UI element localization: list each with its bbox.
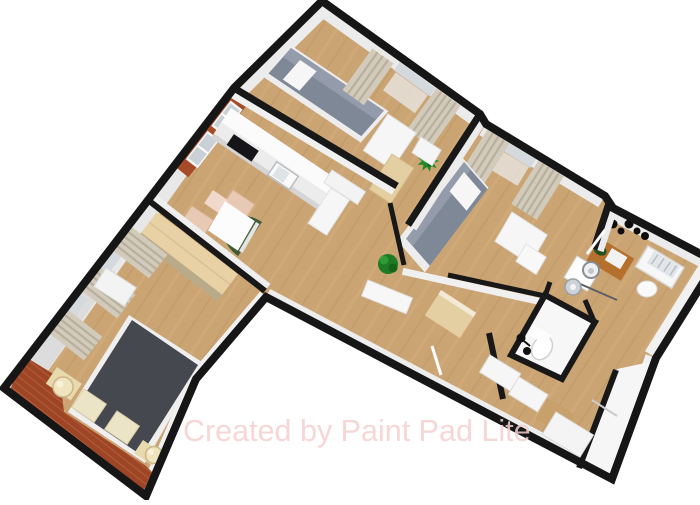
svg-text:Created by Paint Pad Lite: Created by Paint Pad Lite: [183, 414, 531, 448]
